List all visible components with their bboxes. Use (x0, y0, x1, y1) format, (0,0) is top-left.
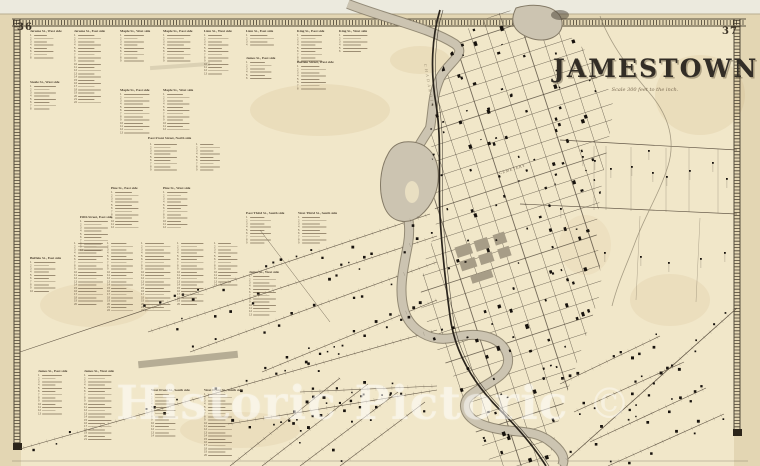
directory-column: Maple St., West side123456789 (120, 29, 168, 63)
directory-column-header: Pine St., East side (111, 186, 159, 190)
directory-column-header: Steele St., West side (30, 80, 78, 84)
directory-column: West Third St., South side123456789 (298, 211, 346, 245)
directory-column-header: James St., West side (84, 369, 132, 373)
directory-entry: 8 (297, 87, 345, 90)
directory-entry: 13 (249, 313, 297, 316)
directory-column-header: West Third St., South side (298, 211, 346, 215)
directory-column: East Third St., South side123456789 (246, 211, 294, 245)
directory-entry: 13 (204, 72, 252, 75)
directory-column-header: Maple St., East side (120, 88, 168, 92)
directory-entry: 6 (246, 77, 294, 80)
directory-column-header: West Front St., South side (204, 388, 252, 392)
directory-entry: 13 (120, 131, 168, 134)
directory-entry: 22 (141, 309, 189, 312)
directory-column: Maple St., West side123456789101112 (163, 88, 211, 131)
directory-column: James St., West side12345678910111213 (249, 270, 297, 317)
directory-column: East Front Street, North side (148, 136, 196, 141)
directory-column: 123456789 (150, 143, 198, 172)
directory-column: Buffalo Street, West side12345678 (297, 60, 345, 91)
directory-entry: 20 (204, 454, 252, 457)
directory-column-header: James St., East side (246, 56, 294, 60)
atlas-sheet: CEMETERY CHADAKOIN 36 37 JAMESTOWN Scale… (0, 0, 760, 466)
directory-entry: 12 (163, 226, 211, 229)
directory-entry: 21 (84, 438, 132, 441)
directory-column-header: Jerome St., East side (74, 29, 122, 33)
directory-column: King St., West side123456 (339, 29, 387, 53)
directory-column: 123456789 (196, 143, 244, 172)
directory-entry: 20 (177, 303, 225, 306)
directory-entry: 6 (339, 50, 387, 53)
directory-column: Linn St., East side1234 (246, 29, 294, 47)
directory-column-header: Maple St., West side (163, 88, 211, 92)
directory-entry: 9 (298, 242, 346, 245)
directory-column-header: King St., West side (339, 29, 387, 33)
directory-entry: 12 (163, 128, 211, 131)
directory-column-header: Fifth Street, East side (80, 215, 128, 219)
directory-column-header: West Front St., South side (151, 388, 199, 392)
directory-column-header: Linn St., East side (246, 29, 294, 33)
directory-column-header: Linn St., West side (204, 29, 252, 33)
directory-column: Steele St., West side12345678 (30, 80, 78, 111)
directory-column: James St., East side12345678910111213 (38, 369, 86, 416)
directory-entry: 4 (246, 44, 294, 47)
directory-column: West Front St., South side12345678910111… (204, 388, 252, 457)
directory-column-header: East Front Street, North side (148, 136, 196, 140)
directory-entry: 13 (38, 412, 86, 415)
directory-entry: 14 (151, 435, 199, 438)
directory-column: Pine St., West side123456789101112 (163, 186, 211, 229)
directory-entry: 10 (30, 290, 78, 293)
directory-column-header: James St., East side (38, 369, 86, 373)
directory-column: Jerome St., East side1234567891011121314… (74, 29, 122, 104)
directory-column: Linn St., West side12345678910111213 (204, 29, 252, 76)
directory-column: West Front St., South side12345678910111… (151, 388, 199, 438)
directory-column: Jerome St., West side12345678 (30, 29, 78, 60)
directory-column-header: East Third St., South side (246, 211, 294, 215)
directory-column: Maple St., East side12345678910111213 (120, 88, 168, 135)
directory-column-header: Buffalo Street, West side (297, 60, 345, 64)
directory-column-header: Pine St., West side (163, 186, 211, 190)
street-directory: Jerome St., West side12345678Jerome St.,… (0, 0, 760, 466)
directory-column-header: Jerome St., West side (30, 29, 78, 33)
directory-column-header: Maple St., West side (120, 29, 168, 33)
directory-column-header: Buffalo St., East side (30, 256, 78, 260)
directory-entry: 8 (30, 56, 78, 59)
directory-entry: 8 (30, 107, 78, 110)
directory-column-header: King St., East side (297, 29, 345, 33)
directory-column: James St., East side123456 (246, 56, 294, 80)
directory-entry: 9 (196, 169, 244, 172)
directory-column: King St., East side123456789 (297, 29, 345, 63)
directory-entry: 9 (150, 169, 198, 172)
directory-column-header: James St., West side (249, 270, 297, 274)
directory-entry: 22 (74, 101, 122, 104)
directory-column: James St., West side12345678910111213141… (84, 369, 132, 441)
directory-column: Buffalo St., East side12345678910 (30, 256, 78, 293)
directory-entry: 9 (120, 60, 168, 63)
